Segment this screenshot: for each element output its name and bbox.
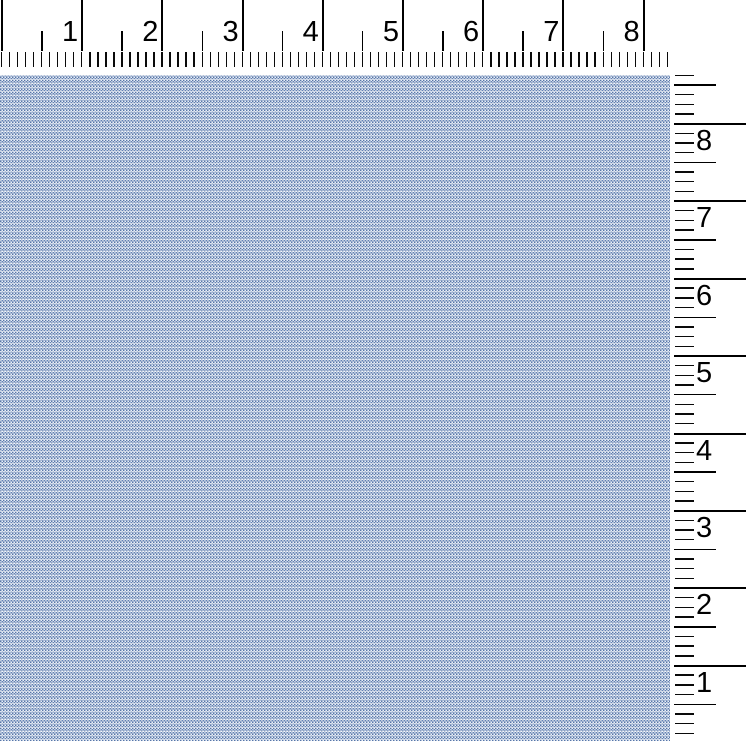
- h-ruler-minor-tick: [635, 52, 636, 67]
- v-ruler-minor-tick: [675, 258, 694, 259]
- v-ruler-number: 2: [696, 592, 732, 619]
- h-ruler-minor-tick: [474, 52, 475, 67]
- h-ruler-minor-tick: [667, 52, 668, 67]
- v-ruler-minor-tick: [675, 510, 694, 511]
- h-ruler-minor-tick: [153, 52, 154, 67]
- h-ruler-number: 6: [439, 19, 479, 46]
- h-ruler-minor-tick: [450, 52, 451, 67]
- h-ruler-minor-tick: [81, 52, 82, 67]
- v-ruler-minor-tick: [675, 355, 694, 356]
- h-ruler-half-tick: [121, 31, 123, 51]
- v-ruler-minor-tick: [675, 471, 694, 472]
- h-ruler-minor-tick: [458, 52, 459, 67]
- h-ruler-half-tick: [522, 31, 524, 51]
- h-ruler-minor-tick: [322, 52, 323, 67]
- v-ruler-minor-tick: [675, 723, 694, 724]
- h-ruler-minor-tick: [242, 52, 243, 67]
- v-ruler-minor-tick: [675, 229, 694, 230]
- v-ruler-minor-tick: [675, 365, 694, 366]
- h-ruler-minor-tick: [65, 52, 66, 67]
- v-ruler-minor-tick: [675, 568, 694, 569]
- h-ruler-minor-tick: [506, 52, 507, 67]
- v-ruler-minor-tick: [675, 94, 694, 95]
- v-ruler-minor-tick: [675, 404, 694, 405]
- v-ruler-number: 8: [696, 128, 732, 155]
- v-ruler-minor-tick: [675, 210, 694, 211]
- v-ruler-minor-tick: [675, 287, 694, 288]
- h-ruler-minor-tick: [594, 52, 595, 67]
- h-ruler-minor-tick: [627, 52, 628, 67]
- v-ruler-minor-tick: [675, 636, 694, 637]
- v-ruler-minor-tick: [675, 413, 694, 414]
- v-ruler-minor-tick: [675, 75, 694, 76]
- h-ruler-minor-tick: [434, 52, 435, 67]
- v-ruler-number: 5: [696, 360, 732, 387]
- v-ruler-minor-tick: [675, 307, 694, 308]
- h-ruler-inch-tick: [81, 0, 83, 51]
- v-ruler-minor-tick: [675, 626, 694, 627]
- h-ruler-inch-tick: [402, 0, 404, 51]
- v-ruler-minor-tick: [675, 375, 694, 376]
- v-ruler-minor-tick: [675, 558, 694, 559]
- v-ruler-half-tick: [674, 239, 716, 241]
- h-ruler-minor-tick: [258, 52, 259, 67]
- h-ruler-minor-tick: [466, 52, 467, 67]
- h-ruler-minor-tick: [314, 52, 315, 67]
- h-ruler-minor-tick: [362, 52, 363, 67]
- h-ruler-minor-tick: [250, 52, 251, 67]
- v-ruler-half-tick: [674, 471, 716, 473]
- h-ruler-minor-tick: [234, 52, 235, 67]
- h-ruler-minor-tick: [210, 52, 211, 67]
- v-ruler-number: 1: [696, 670, 732, 697]
- v-ruler-minor-tick: [675, 655, 694, 656]
- h-ruler-minor-tick: [290, 52, 291, 67]
- h-ruler-minor-tick: [578, 52, 579, 67]
- h-ruler-inch-tick: [161, 0, 163, 51]
- v-ruler-minor-tick: [675, 684, 694, 685]
- h-ruler-minor-tick: [386, 52, 387, 67]
- h-ruler-inch-tick: [1, 0, 3, 51]
- h-ruler-minor-tick: [570, 52, 571, 67]
- h-ruler-minor-tick: [394, 52, 395, 67]
- v-ruler-minor-tick: [675, 539, 694, 540]
- h-ruler-minor-tick: [185, 52, 186, 67]
- h-ruler-minor-tick: [354, 52, 355, 67]
- h-ruler-minor-tick: [410, 52, 411, 67]
- h-ruler-minor-tick: [498, 52, 499, 67]
- v-ruler-minor-tick: [675, 249, 694, 250]
- v-ruler-minor-tick: [675, 152, 694, 153]
- h-ruler-minor-tick: [266, 52, 267, 67]
- h-ruler-minor-tick: [306, 52, 307, 67]
- h-ruler-minor-tick: [562, 52, 563, 67]
- h-ruler-minor-tick: [554, 52, 555, 67]
- v-ruler-inch-tick: [674, 278, 746, 280]
- v-ruler-half-tick: [674, 84, 716, 86]
- h-ruler-number: 2: [118, 19, 158, 46]
- h-ruler-minor-tick: [161, 52, 162, 67]
- h-ruler-number: 5: [359, 19, 399, 46]
- v-ruler-minor-tick: [675, 423, 694, 424]
- h-ruler-inch-tick: [562, 0, 564, 51]
- h-ruler-minor-tick: [177, 52, 178, 67]
- h-ruler-minor-tick: [41, 52, 42, 67]
- v-ruler-minor-tick: [675, 578, 694, 579]
- h-ruler-inch-tick: [322, 0, 324, 51]
- fabric-swatch: [0, 75, 670, 741]
- v-ruler-minor-tick: [675, 239, 694, 240]
- h-ruler-minor-tick: [274, 52, 275, 67]
- v-ruler-minor-tick: [675, 520, 694, 521]
- h-ruler-minor-tick: [426, 52, 427, 67]
- h-ruler-minor-tick: [218, 52, 219, 67]
- v-ruler-half-tick: [674, 549, 716, 551]
- h-ruler-minor-tick: [619, 52, 620, 67]
- h-ruler-minor-tick: [651, 52, 652, 67]
- v-ruler-inch-tick: [674, 587, 746, 589]
- v-ruler-minor-tick: [675, 317, 694, 318]
- v-ruler-minor-tick: [675, 84, 694, 85]
- v-ruler-minor-tick: [675, 123, 694, 124]
- v-ruler-minor-tick: [675, 384, 694, 385]
- h-ruler-minor-tick: [442, 52, 443, 67]
- v-ruler-minor-tick: [675, 549, 694, 550]
- h-ruler-minor-tick: [482, 52, 483, 67]
- h-ruler-minor-tick: [73, 52, 74, 67]
- h-ruler-minor-tick: [659, 52, 660, 67]
- h-ruler-number: 7: [519, 19, 559, 46]
- h-ruler-inch-tick: [482, 0, 484, 51]
- h-ruler-minor-tick: [129, 52, 130, 67]
- h-ruler-minor-tick: [643, 52, 644, 67]
- v-ruler-minor-tick: [675, 336, 694, 337]
- v-ruler-minor-tick: [675, 500, 694, 501]
- v-ruler-minor-tick: [675, 113, 694, 114]
- h-ruler-number: 1: [38, 19, 78, 46]
- v-ruler-minor-tick: [675, 733, 694, 734]
- h-ruler-minor-tick: [202, 52, 203, 67]
- h-ruler-minor-tick: [33, 52, 34, 67]
- v-ruler-minor-tick: [675, 200, 694, 201]
- v-ruler-minor-tick: [675, 394, 694, 395]
- h-ruler-minor-tick: [346, 52, 347, 67]
- h-ruler-minor-tick: [57, 52, 58, 67]
- h-ruler-minor-tick: [121, 52, 122, 67]
- v-ruler-number: 6: [696, 283, 732, 310]
- h-ruler-inch-tick: [242, 0, 244, 51]
- v-ruler-minor-tick: [675, 220, 694, 221]
- h-ruler-minor-tick: [298, 52, 299, 67]
- v-ruler-minor-tick: [675, 481, 694, 482]
- h-ruler-half-tick: [442, 31, 444, 51]
- v-ruler-minor-tick: [675, 597, 694, 598]
- h-ruler-half-tick: [362, 31, 364, 51]
- h-ruler-minor-tick: [522, 52, 523, 67]
- h-ruler-minor-tick: [169, 52, 170, 67]
- v-ruler-minor-tick: [675, 162, 694, 163]
- v-ruler-minor-tick: [675, 181, 694, 182]
- h-ruler-minor-tick: [402, 52, 403, 67]
- v-ruler-minor-tick: [675, 297, 694, 298]
- v-ruler-inch-tick: [674, 510, 746, 512]
- v-ruler-minor-tick: [675, 462, 694, 463]
- h-ruler-minor-tick: [514, 52, 515, 67]
- h-ruler-half-tick: [202, 31, 204, 51]
- h-ruler-minor-tick: [418, 52, 419, 67]
- v-ruler-inch-tick: [674, 355, 746, 357]
- v-ruler-inch-tick: [674, 665, 746, 667]
- h-ruler-minor-tick: [378, 52, 379, 67]
- h-ruler-number: 3: [199, 19, 239, 46]
- h-ruler-minor-tick: [330, 52, 331, 67]
- v-ruler-minor-tick: [675, 529, 694, 530]
- h-ruler-minor-tick: [538, 52, 539, 67]
- v-ruler-half-tick: [674, 394, 716, 396]
- h-ruler-minor-tick: [282, 52, 283, 67]
- v-ruler-number: 7: [696, 205, 732, 232]
- v-ruler-half-tick: [674, 317, 716, 319]
- h-ruler-half-tick: [282, 31, 284, 51]
- h-ruler-minor-tick: [603, 52, 604, 67]
- v-ruler-half-tick: [674, 162, 716, 164]
- h-ruler-number: 8: [600, 19, 640, 46]
- h-ruler-minor-tick: [338, 52, 339, 67]
- h-ruler-minor-tick: [611, 52, 612, 67]
- v-ruler-minor-tick: [675, 142, 694, 143]
- h-ruler-minor-tick: [49, 52, 50, 67]
- v-ruler-minor-tick: [675, 326, 694, 327]
- h-ruler-minor-tick: [226, 52, 227, 67]
- v-ruler-minor-tick: [675, 694, 694, 695]
- v-ruler-inch-tick: [674, 433, 746, 435]
- v-ruler-minor-tick: [675, 587, 694, 588]
- h-ruler-minor-tick: [145, 52, 146, 67]
- h-ruler-minor-tick: [530, 52, 531, 67]
- v-ruler-number: 4: [696, 438, 732, 465]
- h-ruler-minor-tick: [97, 52, 98, 67]
- h-ruler-minor-tick: [25, 52, 26, 67]
- v-ruler-minor-tick: [675, 616, 694, 617]
- v-ruler-half-tick: [674, 704, 716, 706]
- h-ruler-minor-tick: [113, 52, 114, 67]
- v-ruler-minor-tick: [675, 452, 694, 453]
- h-ruler-number: 4: [279, 19, 319, 46]
- h-ruler-half-tick: [603, 31, 605, 51]
- v-ruler-minor-tick: [675, 104, 694, 105]
- v-ruler-minor-tick: [675, 665, 694, 666]
- v-ruler-minor-tick: [675, 674, 694, 675]
- v-ruler-minor-tick: [675, 704, 694, 705]
- v-ruler-minor-tick: [675, 191, 694, 192]
- v-ruler-minor-tick: [675, 607, 694, 608]
- v-ruler-number: 3: [696, 515, 732, 542]
- v-ruler-inch-tick: [674, 123, 746, 125]
- h-ruler-minor-tick: [370, 52, 371, 67]
- h-ruler-minor-tick: [89, 52, 90, 67]
- h-ruler-inch-tick: [643, 0, 645, 51]
- v-ruler-minor-tick: [675, 278, 694, 279]
- h-ruler-minor-tick: [490, 52, 491, 67]
- v-ruler-minor-tick: [675, 491, 694, 492]
- h-ruler-minor-tick: [17, 52, 18, 67]
- h-ruler-minor-tick: [105, 52, 106, 67]
- v-ruler-minor-tick: [675, 442, 694, 443]
- v-ruler-minor-tick: [675, 133, 694, 134]
- v-ruler-minor-tick: [675, 713, 694, 714]
- v-ruler-half-tick: [674, 626, 716, 628]
- h-ruler-minor-tick: [1, 52, 2, 67]
- v-ruler-minor-tick: [675, 346, 694, 347]
- v-ruler-minor-tick: [675, 645, 694, 646]
- h-ruler-minor-tick: [193, 52, 194, 67]
- v-ruler-inch-tick: [674, 200, 746, 202]
- v-ruler-minor-tick: [675, 268, 694, 269]
- h-ruler-half-tick: [41, 31, 43, 51]
- h-ruler-minor-tick: [137, 52, 138, 67]
- swatch-measurement-view: 12345678 87654321: [0, 0, 746, 741]
- h-ruler-minor-tick: [586, 52, 587, 67]
- h-ruler-minor-tick: [546, 52, 547, 67]
- v-ruler-minor-tick: [675, 433, 694, 434]
- v-ruler-minor-tick: [675, 171, 694, 172]
- h-ruler-minor-tick: [9, 52, 10, 67]
